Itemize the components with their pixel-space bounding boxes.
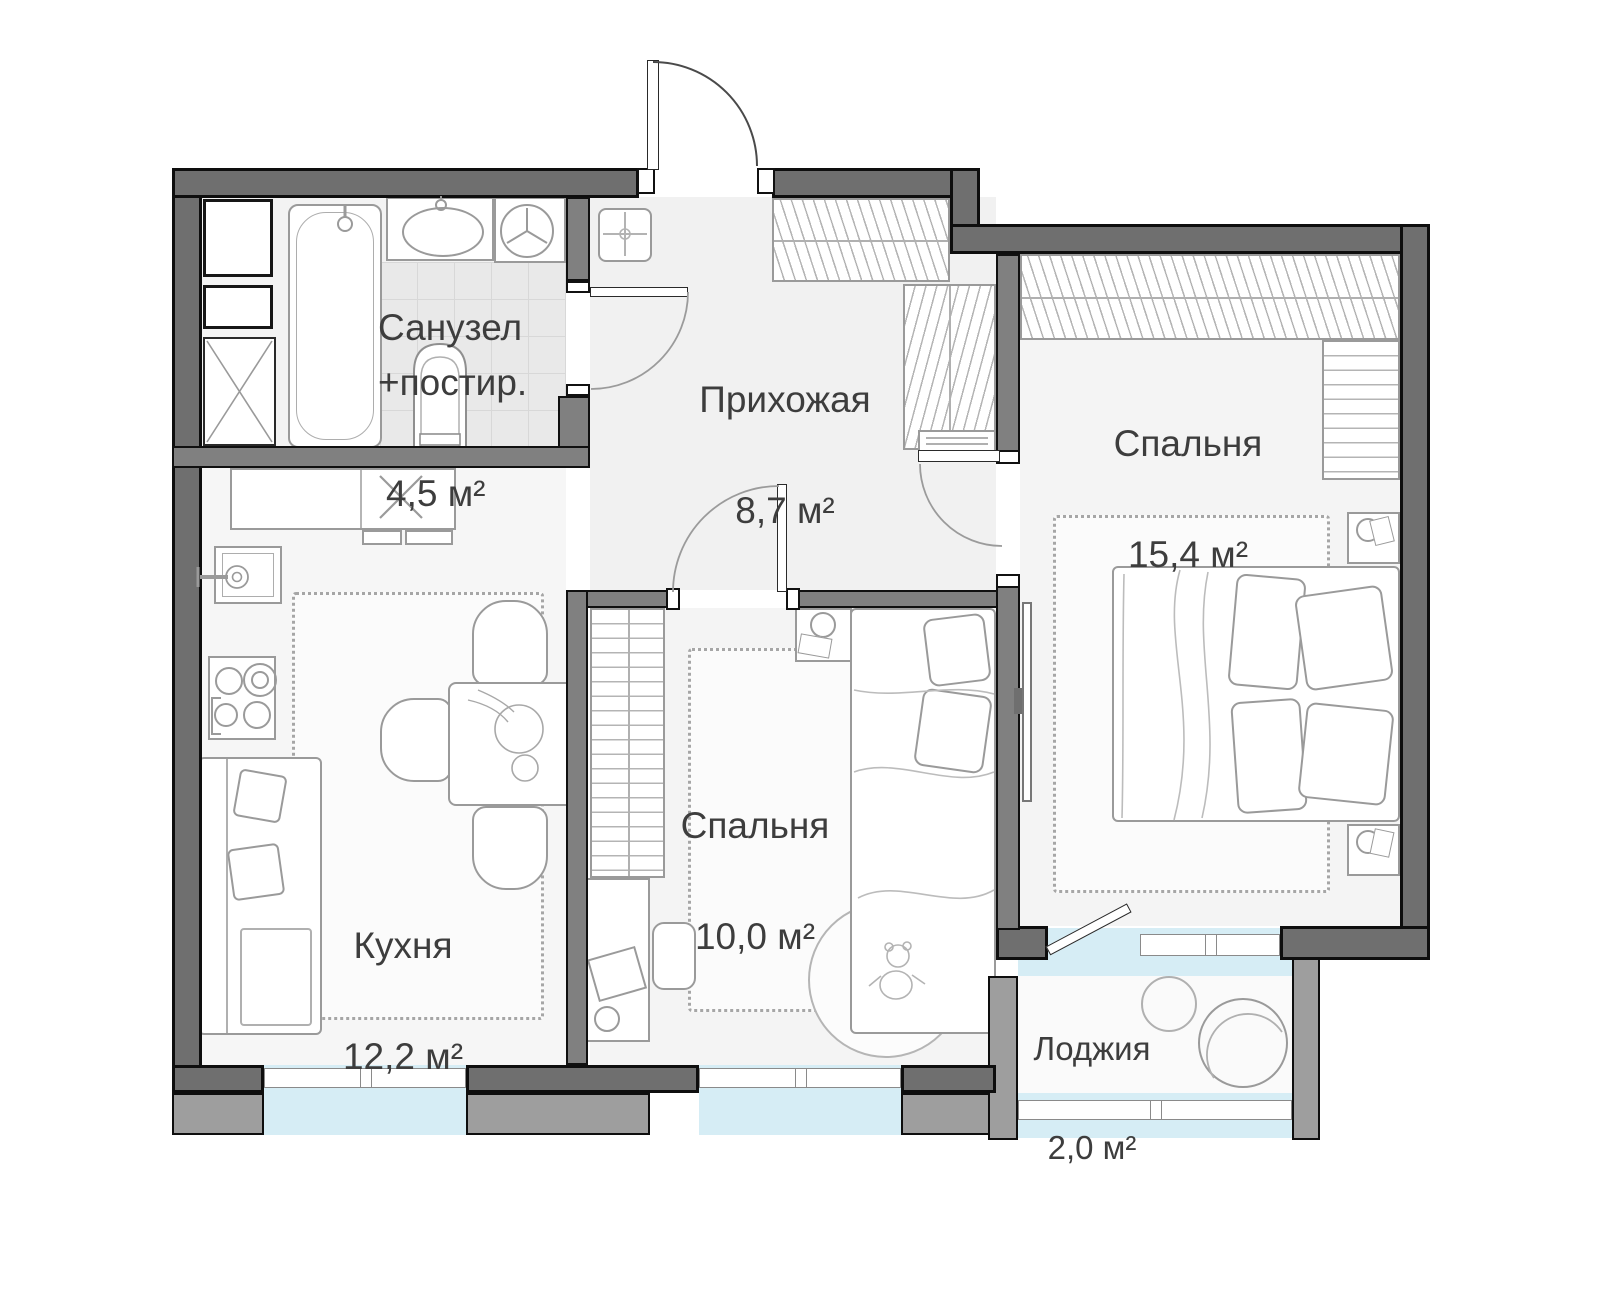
bedroom-main-wardrobe: [1020, 254, 1400, 340]
bedroom-small-window-frame: [699, 1068, 901, 1088]
ventilation-shaft: [203, 337, 276, 446]
bathtub-basin: [296, 212, 374, 440]
room-label-bedroom-small: Спальня 10,0 м²: [660, 742, 850, 1020]
wall-bathroom-right-lower: [558, 396, 590, 448]
wall-bedroom-main-bottom: [1280, 926, 1430, 960]
wall-bedroom-partition-lower: [996, 586, 1020, 930]
room-name: Кухня: [310, 918, 496, 974]
wall-left: [172, 168, 202, 1093]
bed-pillow: [1230, 698, 1308, 815]
sofa-pillow: [232, 768, 288, 824]
shoe-bench: [918, 430, 996, 452]
entrance-jamb: [637, 168, 655, 194]
bathroom-door-jamb: [566, 281, 590, 293]
bed-pillow: [922, 612, 992, 687]
wall-bedroom-partition-upper: [996, 254, 1020, 464]
burner: [243, 701, 271, 729]
bathroom-door: [590, 287, 688, 297]
bedroom-main-door-jamb: [996, 574, 1020, 588]
room-name: Прихожая: [690, 372, 880, 428]
wall-top-c: [950, 224, 1430, 254]
tv: [1022, 602, 1032, 802]
room-area: 4,5 м²: [378, 466, 554, 522]
loggia-plant-pot: [1198, 998, 1288, 1088]
wall-bedroom-main-bottom-stub: [996, 926, 1048, 960]
entrance-jamb: [757, 168, 775, 194]
facade-pier: [172, 1093, 264, 1135]
facade-pier: [901, 1093, 996, 1135]
storage-box: [203, 199, 273, 277]
room-label-hallway: Прихожая 8,7 м²: [690, 316, 880, 594]
wall-bathroom-right-upper: [566, 197, 590, 281]
room-name: Санузел +постир.: [378, 300, 554, 411]
wall-kitchen-partition: [566, 590, 588, 1065]
tv-mount: [1014, 688, 1022, 714]
chair: [380, 698, 452, 782]
room-area: 10,0 м²: [660, 909, 850, 965]
burner-bracket: [211, 697, 221, 735]
entrance-door: [647, 60, 659, 170]
bedroom-main-shelving: [1322, 340, 1400, 480]
room-area: 12,2 м²: [310, 1029, 496, 1085]
burner-inner: [251, 671, 269, 689]
burner: [215, 667, 243, 695]
room-label-loggia: Лоджия 2,0 м²: [1002, 974, 1182, 1222]
wall-bottom-seg1: [172, 1065, 264, 1093]
wall-bottom-seg2: [466, 1065, 699, 1093]
wall-top-b: [772, 168, 978, 198]
kitchen-sink: [214, 546, 282, 604]
bed-pillow: [1294, 584, 1395, 691]
wall-top-a: [172, 168, 639, 198]
wall-bottom-seg3: [901, 1065, 996, 1093]
bedroom-small-wardrobe: [590, 608, 665, 878]
lamp: [810, 612, 836, 638]
storage-box: [203, 285, 273, 329]
sofa-pillow: [227, 843, 286, 902]
wall-right: [1400, 224, 1430, 960]
room-area: 8,7 м²: [690, 483, 880, 539]
bed-pillow: [1297, 702, 1395, 807]
bedroom-small-door-jamb: [666, 588, 680, 610]
room-label-bedroom-main: Спальня 15,4 м²: [1088, 360, 1288, 638]
desk-cup: [594, 1006, 620, 1032]
room-name: Лоджия: [1002, 1024, 1182, 1074]
bed-pillow: [913, 688, 993, 775]
room-name: Спальня: [660, 798, 850, 854]
bedroom-loggia-window-frame: [1140, 934, 1280, 956]
floor-plan: Санузел +постир. 4,5 м² Прихожая 8,7 м² …: [0, 0, 1600, 1307]
hallway-wardrobe: [772, 198, 950, 282]
room-area: 2,0 м²: [1002, 1123, 1182, 1173]
floor-drain-icon: [598, 208, 652, 262]
room-label-bathroom: Санузел +постир. 4,5 м²: [378, 244, 554, 577]
bathroom-door-jamb: [566, 384, 590, 396]
room-label-kitchen: Кухня 12,2 м²: [310, 862, 496, 1140]
dining-table: [448, 682, 574, 806]
bedroom-main-door: [918, 450, 1000, 462]
chair: [472, 600, 548, 686]
room-area: 15,4 м²: [1088, 527, 1288, 583]
sofa-seat: [240, 928, 312, 1026]
room-name: Спальня: [1088, 416, 1288, 472]
loggia-wall-right: [1292, 958, 1320, 1140]
hallway-corner-wardrobe: [903, 284, 996, 450]
